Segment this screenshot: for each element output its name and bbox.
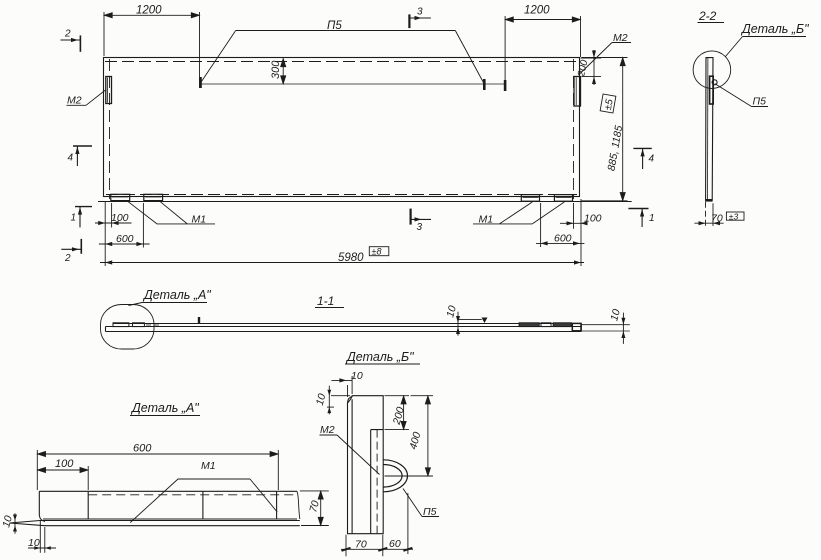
svg-text:Деталь „А": Деталь „А" bbox=[130, 401, 199, 415]
svg-text:П5: П5 bbox=[327, 20, 342, 32]
svg-text:2: 2 bbox=[64, 29, 71, 40]
svg-text:М1: М1 bbox=[201, 460, 216, 472]
svg-text:М1: М1 bbox=[192, 214, 207, 226]
svg-text:600: 600 bbox=[116, 233, 134, 245]
svg-text:1200: 1200 bbox=[524, 5, 550, 17]
svg-text:60: 60 bbox=[389, 538, 401, 550]
svg-text:1-1: 1-1 bbox=[317, 294, 334, 308]
svg-text:±5: ±5 bbox=[603, 98, 616, 111]
svg-text:600: 600 bbox=[554, 233, 572, 245]
svg-text:3: 3 bbox=[417, 222, 423, 233]
svg-text:±3: ±3 bbox=[729, 211, 739, 221]
svg-text:1: 1 bbox=[649, 213, 655, 224]
svg-text:1200: 1200 bbox=[136, 5, 162, 17]
svg-text:1: 1 bbox=[71, 213, 77, 224]
svg-text:3: 3 bbox=[417, 7, 423, 18]
svg-text:300: 300 bbox=[270, 60, 282, 79]
svg-text:4: 4 bbox=[649, 154, 655, 165]
svg-text:10: 10 bbox=[28, 537, 40, 549]
svg-text:П5: П5 bbox=[753, 96, 767, 108]
svg-text:200: 200 bbox=[391, 406, 407, 427]
svg-text:±8: ±8 bbox=[372, 247, 382, 257]
svg-text:100: 100 bbox=[111, 212, 129, 224]
svg-text:10: 10 bbox=[0, 514, 15, 529]
svg-text:10: 10 bbox=[608, 308, 623, 323]
svg-text:Деталь „А": Деталь „А" bbox=[142, 288, 211, 302]
svg-text:200: 200 bbox=[576, 59, 591, 79]
svg-text:2-2: 2-2 bbox=[698, 9, 717, 23]
svg-text:М2: М2 bbox=[320, 424, 335, 436]
svg-text:5980: 5980 bbox=[338, 252, 364, 264]
svg-text:10: 10 bbox=[351, 370, 363, 382]
svg-text:100: 100 bbox=[584, 213, 602, 225]
svg-text:10: 10 bbox=[314, 392, 329, 407]
svg-text:М2: М2 bbox=[613, 32, 628, 44]
svg-text:70: 70 bbox=[355, 539, 367, 551]
svg-text:М2: М2 bbox=[67, 95, 82, 107]
svg-text:2: 2 bbox=[64, 253, 71, 264]
svg-text:Деталь „Б": Деталь „Б" bbox=[740, 22, 809, 36]
svg-text:600: 600 bbox=[133, 443, 152, 455]
svg-text:400: 400 bbox=[407, 431, 423, 451]
svg-text:100: 100 bbox=[55, 458, 74, 470]
svg-text:М1: М1 bbox=[479, 214, 494, 226]
svg-text:Деталь „Б": Деталь „Б" bbox=[345, 350, 414, 364]
svg-text:70: 70 bbox=[307, 499, 322, 514]
svg-text:4: 4 bbox=[68, 153, 74, 164]
svg-text:70: 70 bbox=[711, 213, 723, 225]
